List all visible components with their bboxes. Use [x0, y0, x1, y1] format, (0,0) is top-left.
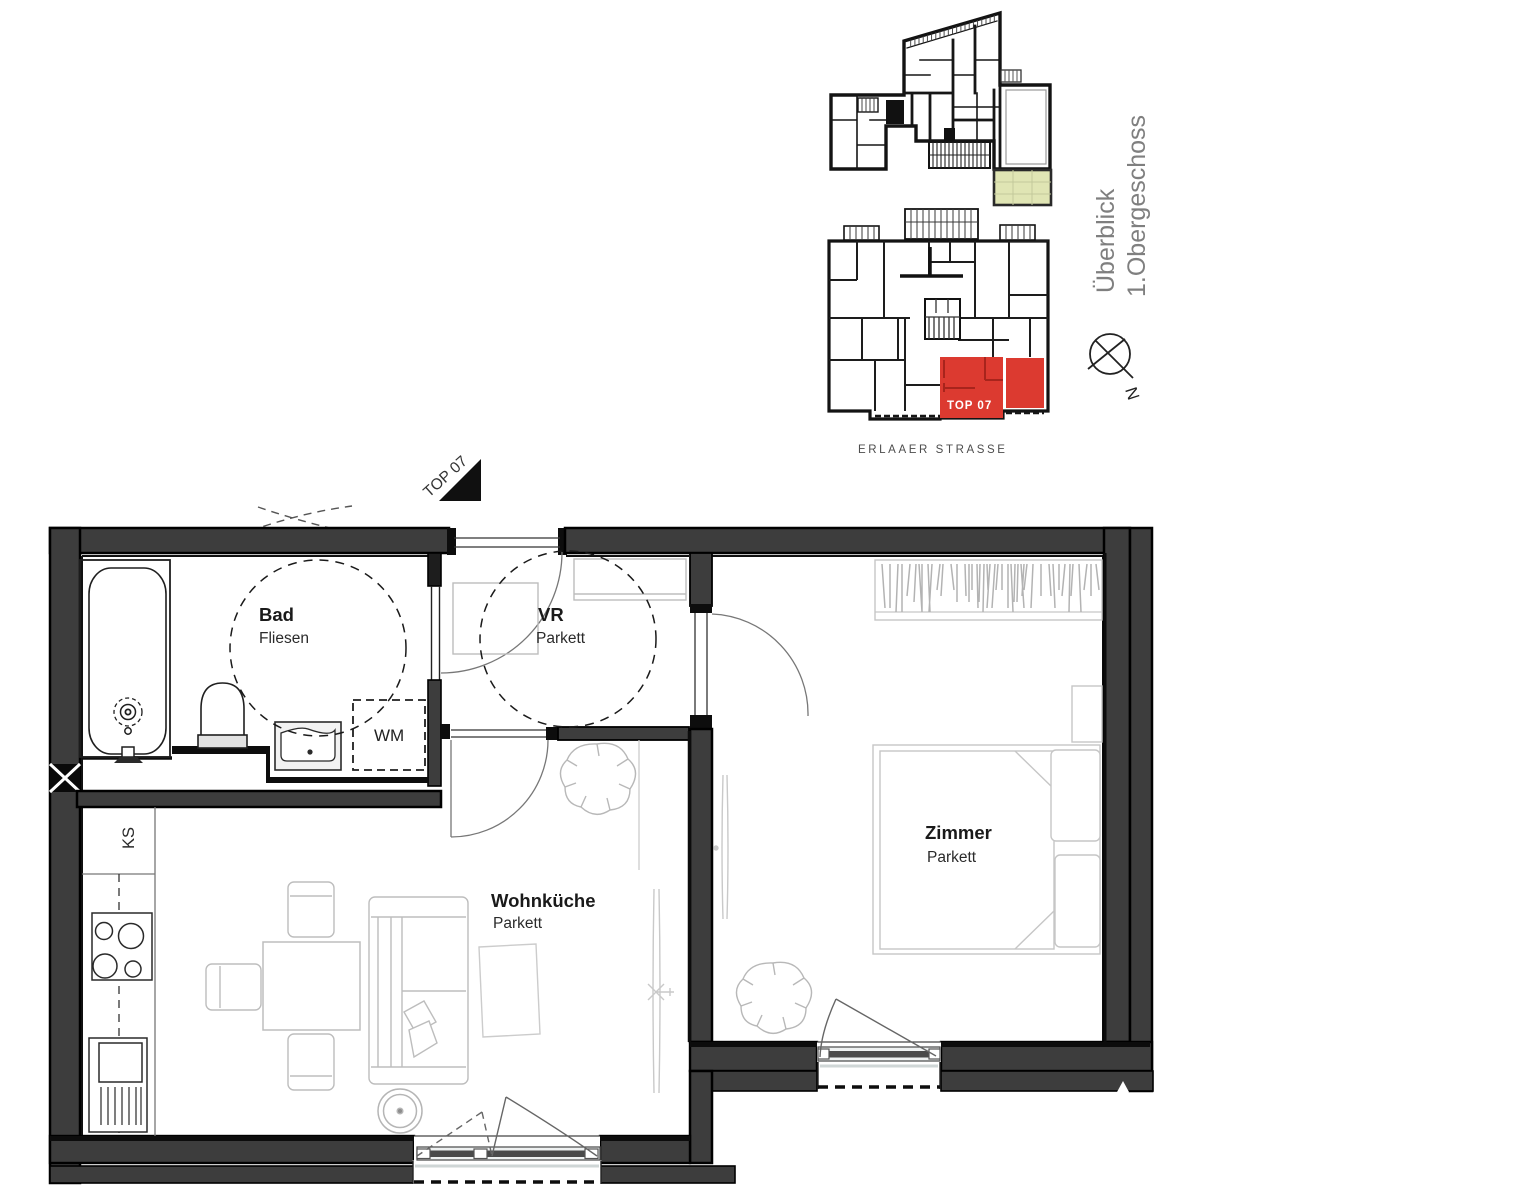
svg-text:Fliesen: Fliesen — [259, 630, 309, 647]
svg-text:TOP 07: TOP 07 — [947, 400, 992, 412]
svg-text:1.Obergeschoss: 1.Obergeschoss — [1123, 115, 1151, 297]
svg-text:Parkett: Parkett — [493, 915, 543, 932]
svg-text:Parkett: Parkett — [927, 849, 977, 866]
svg-text:Wohnküche: Wohnküche — [491, 890, 596, 911]
svg-text:ERLAAER STRASSE: ERLAAER STRASSE — [858, 444, 1008, 456]
svg-text:KS: KS — [120, 827, 138, 849]
svg-text:Bad: Bad — [259, 604, 294, 625]
svg-text:VR: VR — [538, 604, 564, 625]
svg-text:Parkett: Parkett — [536, 630, 586, 647]
svg-text:Zimmer: Zimmer — [925, 822, 992, 843]
svg-text:WM: WM — [374, 726, 404, 745]
svg-text:Überblick: Überblick — [1092, 188, 1120, 293]
